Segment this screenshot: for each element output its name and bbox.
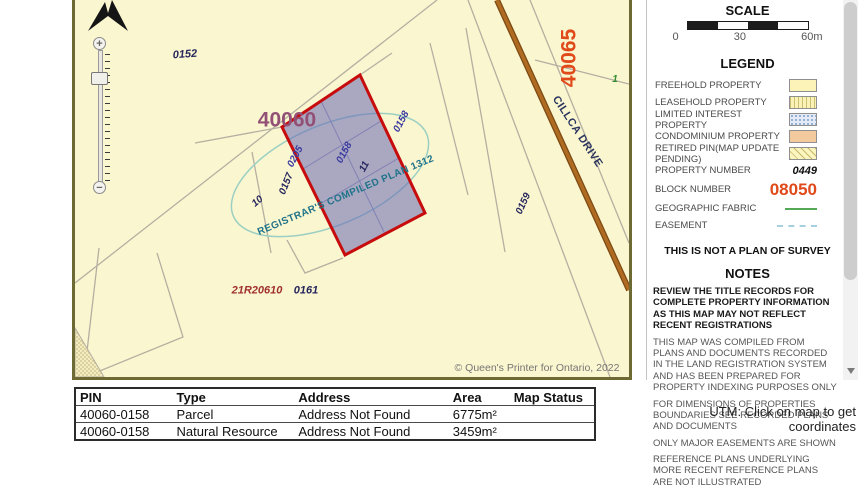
- legend-item-retired-pin: RETIRED PIN(MAP UPDATE PENDING): [655, 145, 817, 162]
- legend-panel: SCALE 0 30 60m LEGEND FREEHOLD PROPERTY …: [646, 0, 858, 380]
- block-label-40060: 40060: [258, 110, 316, 131]
- cell-type: Natural Resource: [173, 423, 295, 441]
- legend-item-geographic-fabric: GEOGRAPHIC FABRIC: [655, 200, 817, 217]
- cell-status: [510, 406, 595, 423]
- cell-address: Address Not Found: [294, 423, 448, 441]
- legend-label: GEOGRAPHIC FABRIC: [655, 203, 756, 214]
- cell-pin: 40060-0158: [75, 406, 173, 423]
- block-label-40065: 40065: [559, 29, 580, 87]
- legend-label: LEASEHOLD PROPERTY: [655, 97, 767, 108]
- legend-item-limited-interest: LIMITED INTEREST PROPERTY: [655, 111, 817, 128]
- cell-status: [510, 423, 595, 441]
- notes-title: NOTES: [651, 266, 844, 281]
- easement-swatch: [777, 225, 817, 227]
- map-canvas[interactable]: 0152 40060 40065 CILLCA DRIVE 0159 0205 …: [72, 0, 632, 380]
- zoom-out-button[interactable]: −: [93, 181, 106, 194]
- cell-area: 3459m²: [449, 423, 510, 441]
- copyright-notice: © Queen's Printer for Ontario, 2022: [455, 363, 620, 374]
- cell-area: 6775m²: [449, 406, 510, 423]
- table-row[interactable]: 40060-0158 Natural Resource Address Not …: [75, 423, 595, 441]
- pin-label-0161: 0161: [294, 286, 318, 297]
- pin-label-0152: 0152: [172, 49, 197, 62]
- fabric-label-1: 1: [612, 75, 618, 85]
- table-row[interactable]: 40060-0158 Parcel Address Not Found 6775…: [75, 406, 595, 423]
- reference-plan-label: 21R20610: [232, 286, 283, 297]
- legend-label: PROPERTY NUMBER: [655, 165, 751, 176]
- scroll-down-icon: [847, 368, 855, 374]
- cell-address: Address Not Found: [294, 406, 448, 423]
- legend-item-easement: EASEMENT: [655, 217, 817, 234]
- utm-coordinates-hint: UTM: Click on map to get coordinates: [640, 404, 856, 434]
- scale-bar: [687, 21, 809, 30]
- zoom-slider-handle[interactable]: [91, 72, 108, 85]
- legend-label: RETIRED PIN(MAP UPDATE PENDING): [655, 143, 789, 165]
- scale-tick-30: 30: [734, 31, 746, 43]
- condominium-swatch: [789, 130, 817, 143]
- panel-scrollbar[interactable]: [843, 0, 858, 380]
- not-plan-of-survey-notice: THIS IS NOT A PLAN OF SURVEY: [651, 245, 844, 257]
- retired-pin-swatch: [789, 147, 817, 160]
- zoom-slider-track[interactable]: [98, 50, 103, 184]
- legend-item-property-number: PROPERTY NUMBER 0449: [655, 162, 817, 179]
- legend-item-block-number: BLOCK NUMBER 08050: [655, 179, 817, 200]
- freehold-swatch: [789, 79, 817, 92]
- cell-type: Parcel: [173, 406, 295, 423]
- legend-title: LEGEND: [651, 56, 844, 71]
- header-area: Area: [449, 388, 510, 406]
- block-number-sample: 08050: [770, 180, 817, 200]
- cell-pin: 40060-0158: [75, 423, 173, 441]
- scale-tick-0: 0: [673, 31, 679, 43]
- header-pin: PIN: [75, 388, 173, 406]
- pin-results-table: PIN Type Address Area Map Status 40060-0…: [74, 387, 596, 441]
- north-arrow-icon: [88, 0, 128, 31]
- scrollbar-thumb[interactable]: [844, 2, 857, 280]
- legend-label: EASEMENT: [655, 220, 707, 231]
- scale-title: SCALE: [651, 3, 844, 18]
- header-address: Address: [294, 388, 448, 406]
- zoom-in-button[interactable]: +: [93, 37, 106, 50]
- notes-paragraph: ONLY MAJOR EASEMENTS ARE SHOWN: [653, 438, 838, 449]
- hatched-corner-parcel: [75, 328, 104, 377]
- limited-interest-swatch: [789, 113, 817, 126]
- table-header-row: PIN Type Address Area Map Status: [75, 388, 595, 406]
- header-map-status: Map Status: [510, 388, 595, 406]
- notes-paragraph: REFERENCE PLANS UNDERLYING MORE RECENT R…: [653, 454, 838, 488]
- header-type: Type: [173, 388, 295, 406]
- notes-warning: REVIEW THE TITLE RECORDS FOR COMPLETE PR…: [653, 286, 838, 332]
- legend-label: CONDOMINIUM PROPERTY: [655, 131, 780, 142]
- notes-paragraph: THIS MAP WAS COMPILED FROM PLANS AND DOC…: [653, 337, 838, 394]
- legend-label: FREEHOLD PROPERTY: [655, 80, 761, 91]
- property-number-sample: 0449: [793, 165, 817, 177]
- legend-label: LIMITED INTEREST PROPERTY: [655, 109, 789, 131]
- geographic-fabric-swatch: [785, 208, 817, 210]
- scale-tick-60: 60m: [801, 31, 822, 43]
- leasehold-swatch: [789, 96, 817, 109]
- scroll-down-button[interactable]: [844, 364, 857, 377]
- legend-label: BLOCK NUMBER: [655, 184, 731, 195]
- legend-item-freehold: FREEHOLD PROPERTY: [655, 77, 817, 94]
